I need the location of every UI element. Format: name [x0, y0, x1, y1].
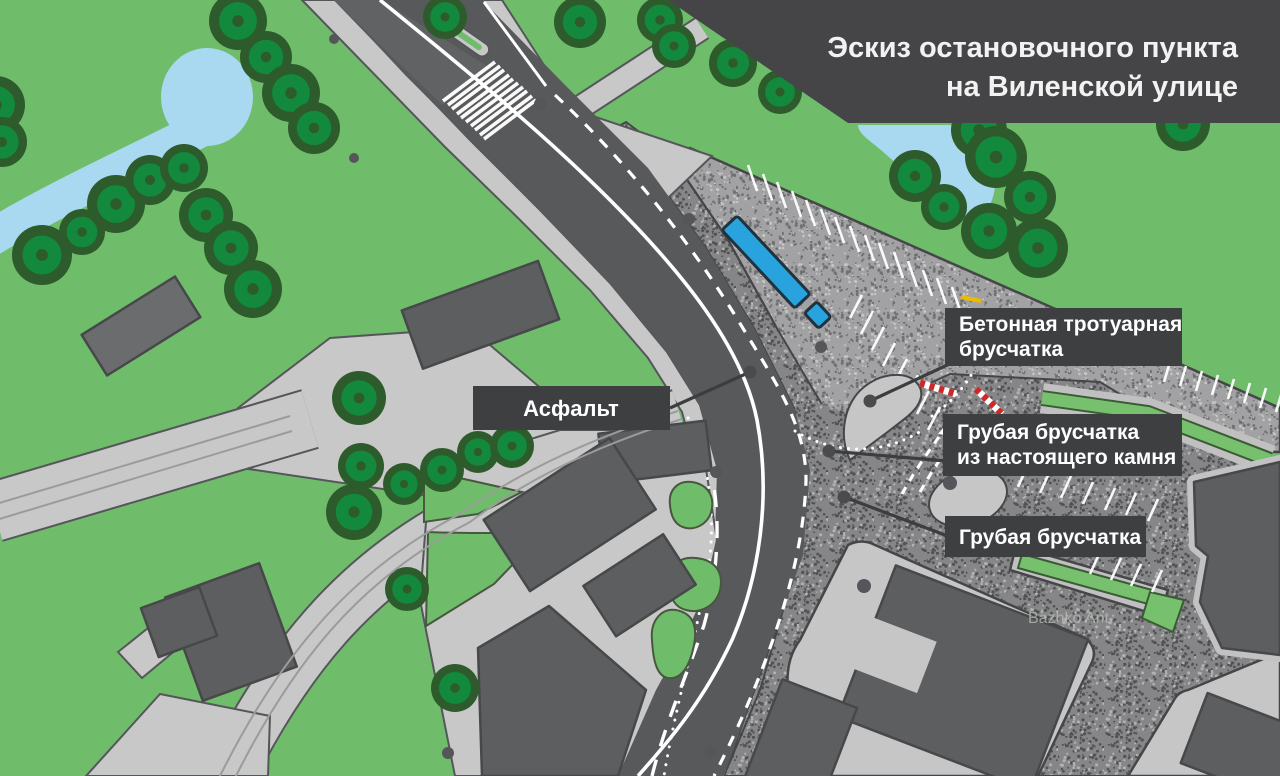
svg-text:Эскиз остановочного пункта: Эскиз остановочного пункта — [827, 32, 1238, 64]
svg-text:Асфальт: Асфальт — [523, 396, 619, 421]
svg-text:из настоящего камня: из настоящего камня — [957, 446, 1176, 469]
svg-text:Грубая брусчатка: Грубая брусчатка — [957, 421, 1140, 444]
svg-text:Bazhko Ant.: Bazhko Ant. — [1028, 610, 1113, 627]
svg-text:Бетонная тротуарная: Бетонная тротуарная — [959, 313, 1182, 336]
svg-text:брусчатка: брусчатка — [959, 338, 1063, 361]
svg-text:Грубая брусчатка: Грубая брусчатка — [959, 526, 1142, 549]
svg-text:на Виленской улице: на Виленской улице — [946, 71, 1238, 103]
